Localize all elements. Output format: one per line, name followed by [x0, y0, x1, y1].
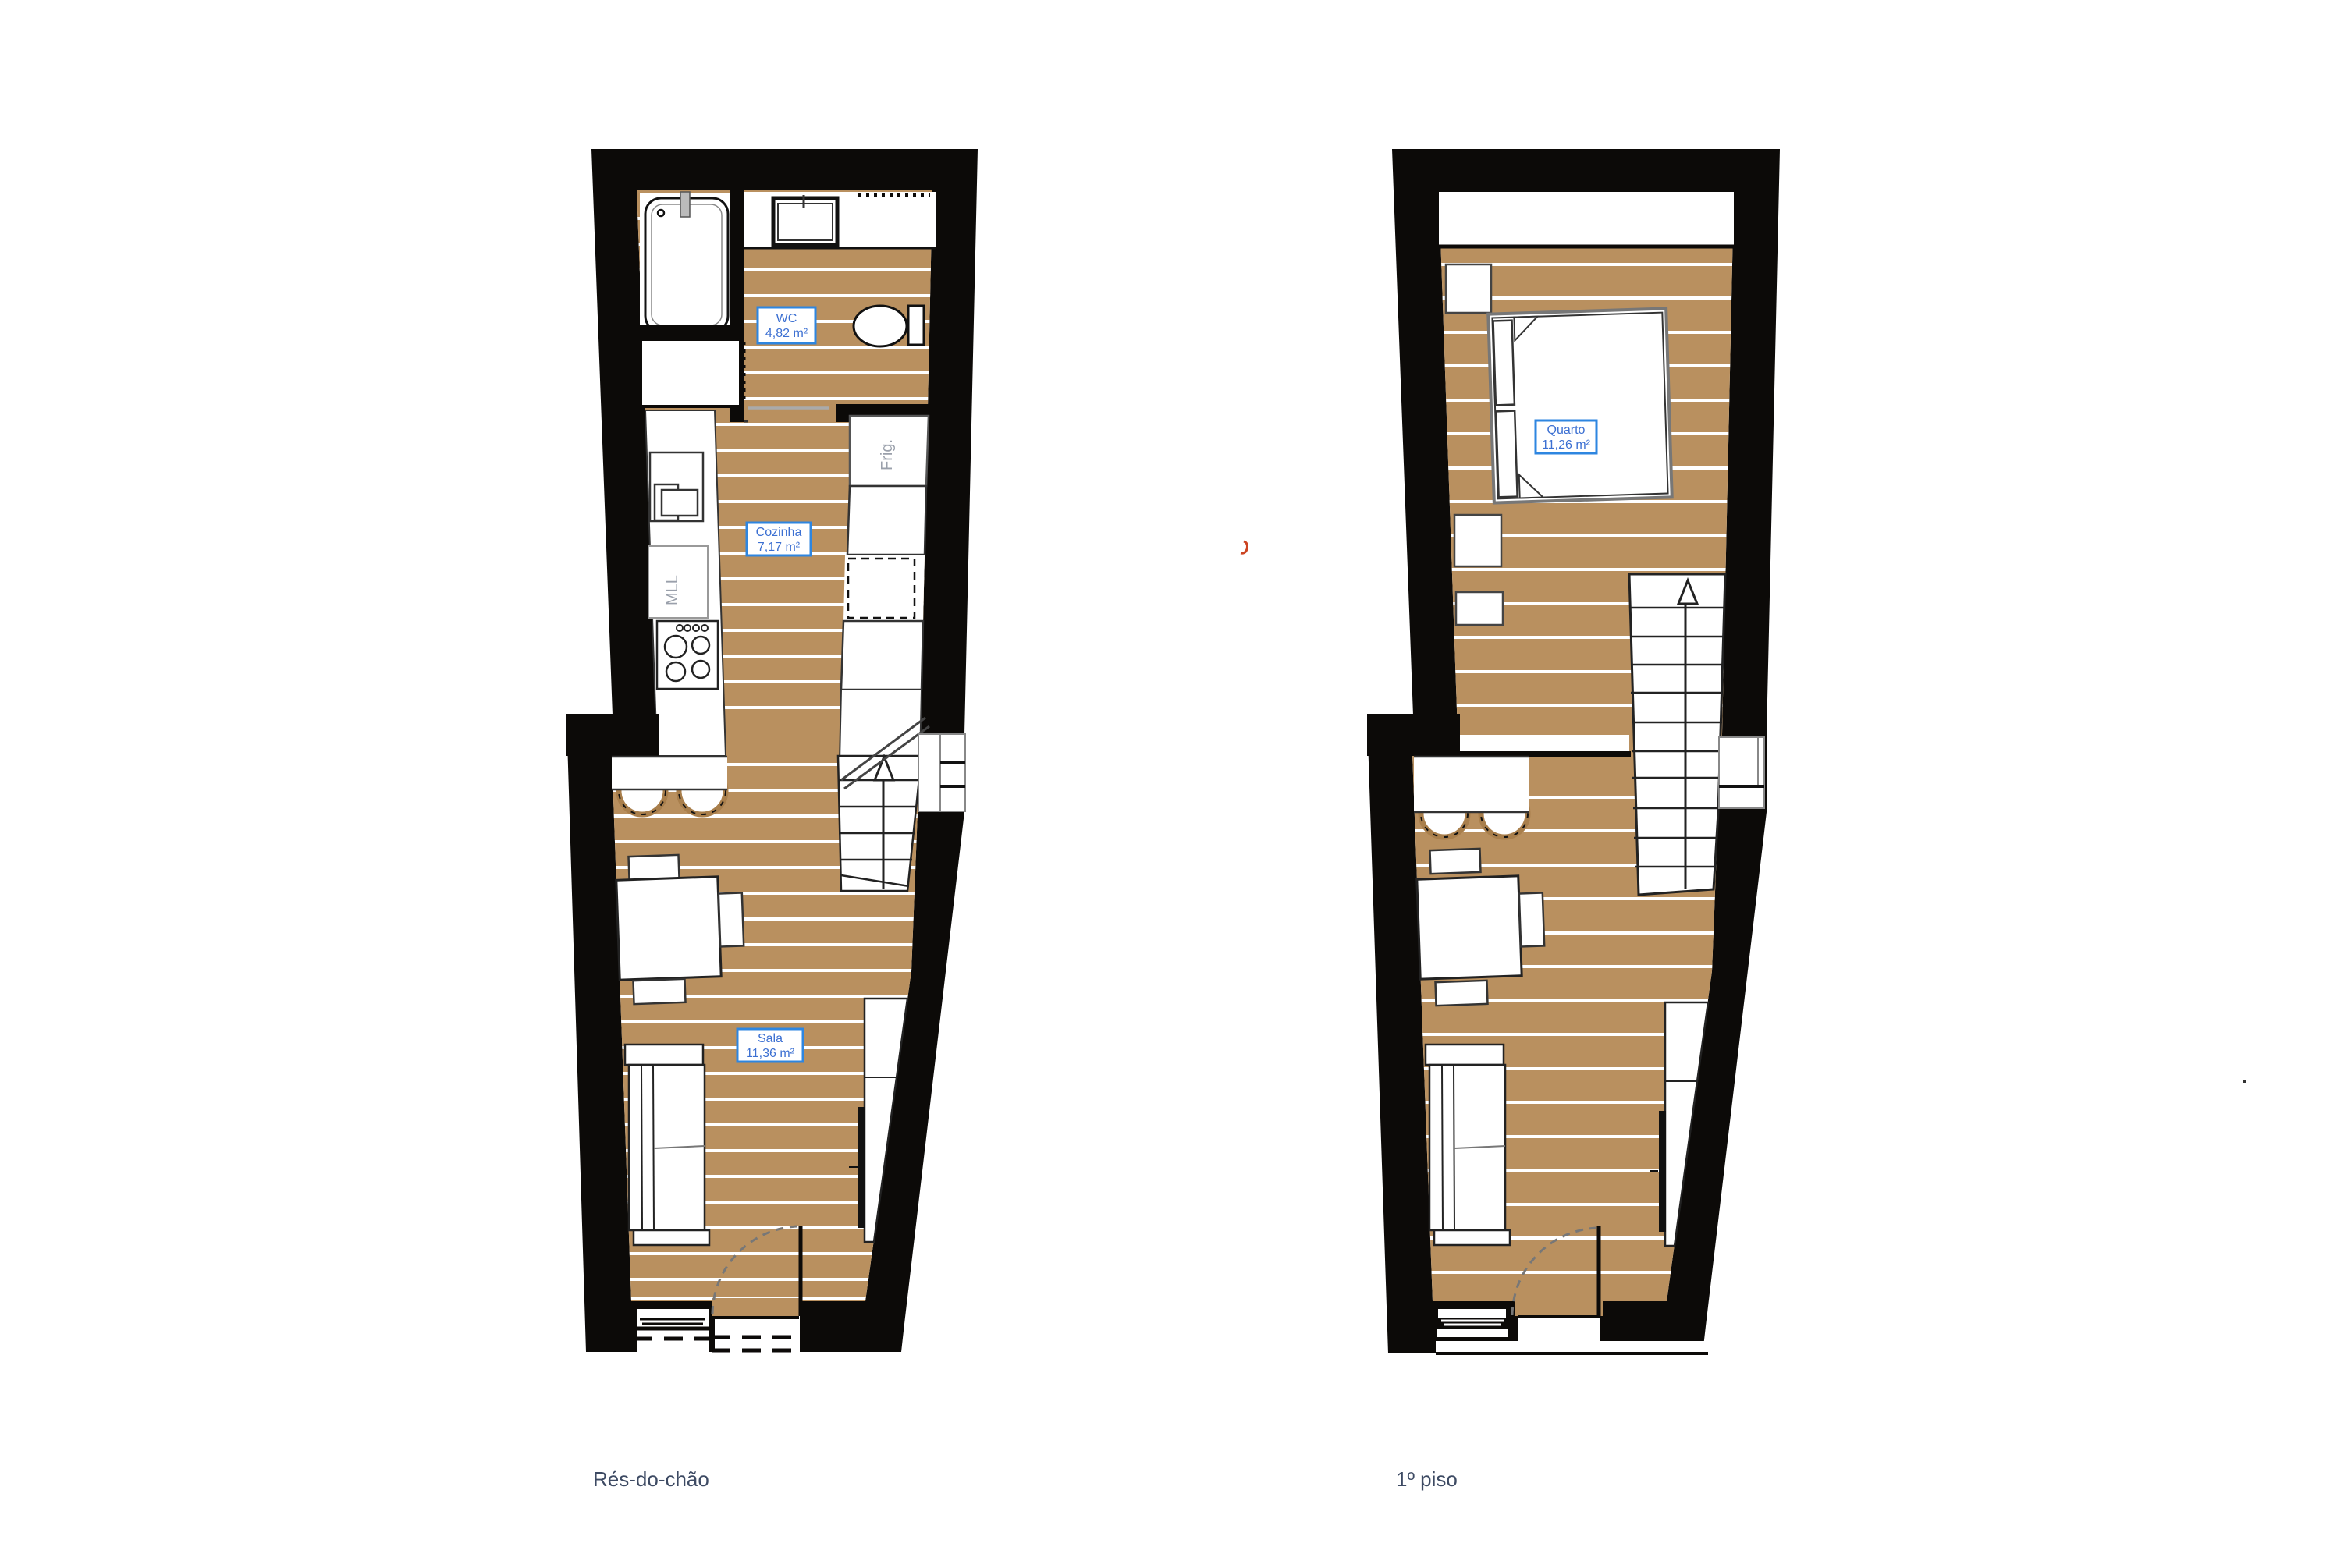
- svg-text:1º piso: 1º piso: [1396, 1467, 1458, 1491]
- svg-text:MLL: MLL: [664, 575, 681, 605]
- svg-text:7,17 m²: 7,17 m²: [758, 541, 801, 554]
- svg-text:4,82 m²: 4,82 m²: [765, 327, 808, 340]
- svg-text:Quarto: Quarto: [1547, 424, 1586, 437]
- svg-text:WC: WC: [776, 312, 797, 325]
- svg-text:11,36 m²: 11,36 m²: [746, 1047, 795, 1060]
- svg-text:Frig.: Frig.: [879, 439, 896, 470]
- svg-text:11,26 m²: 11,26 m²: [1542, 438, 1591, 452]
- svg-text:Cozinha: Cozinha: [756, 526, 802, 539]
- svg-text:Sala: Sala: [758, 1032, 783, 1045]
- svg-text:Rés-do-chão: Rés-do-chão: [593, 1467, 709, 1491]
